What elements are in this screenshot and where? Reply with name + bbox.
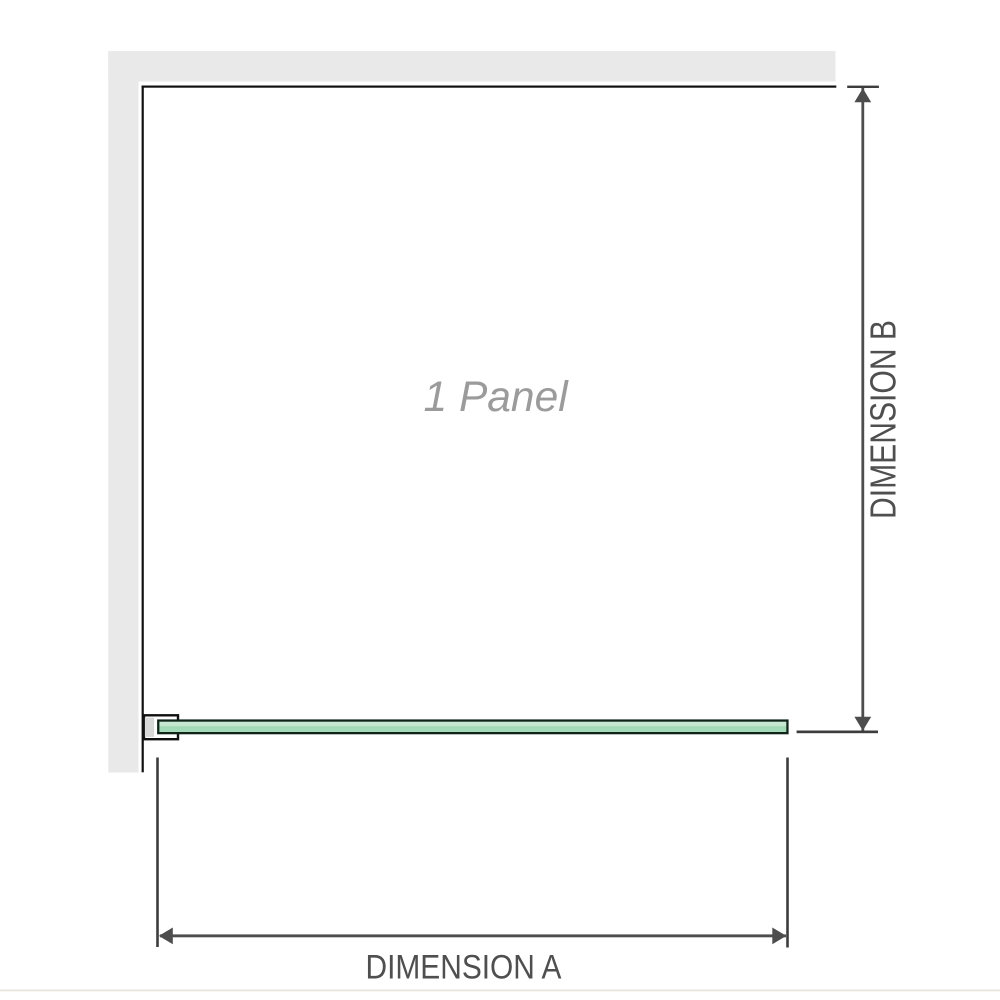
svg-text:1 Panel: 1 Panel bbox=[424, 374, 570, 421]
svg-text:DIMENSION A: DIMENSION A bbox=[366, 948, 562, 986]
svg-text:DIMENSION B: DIMENSION B bbox=[863, 320, 904, 519]
